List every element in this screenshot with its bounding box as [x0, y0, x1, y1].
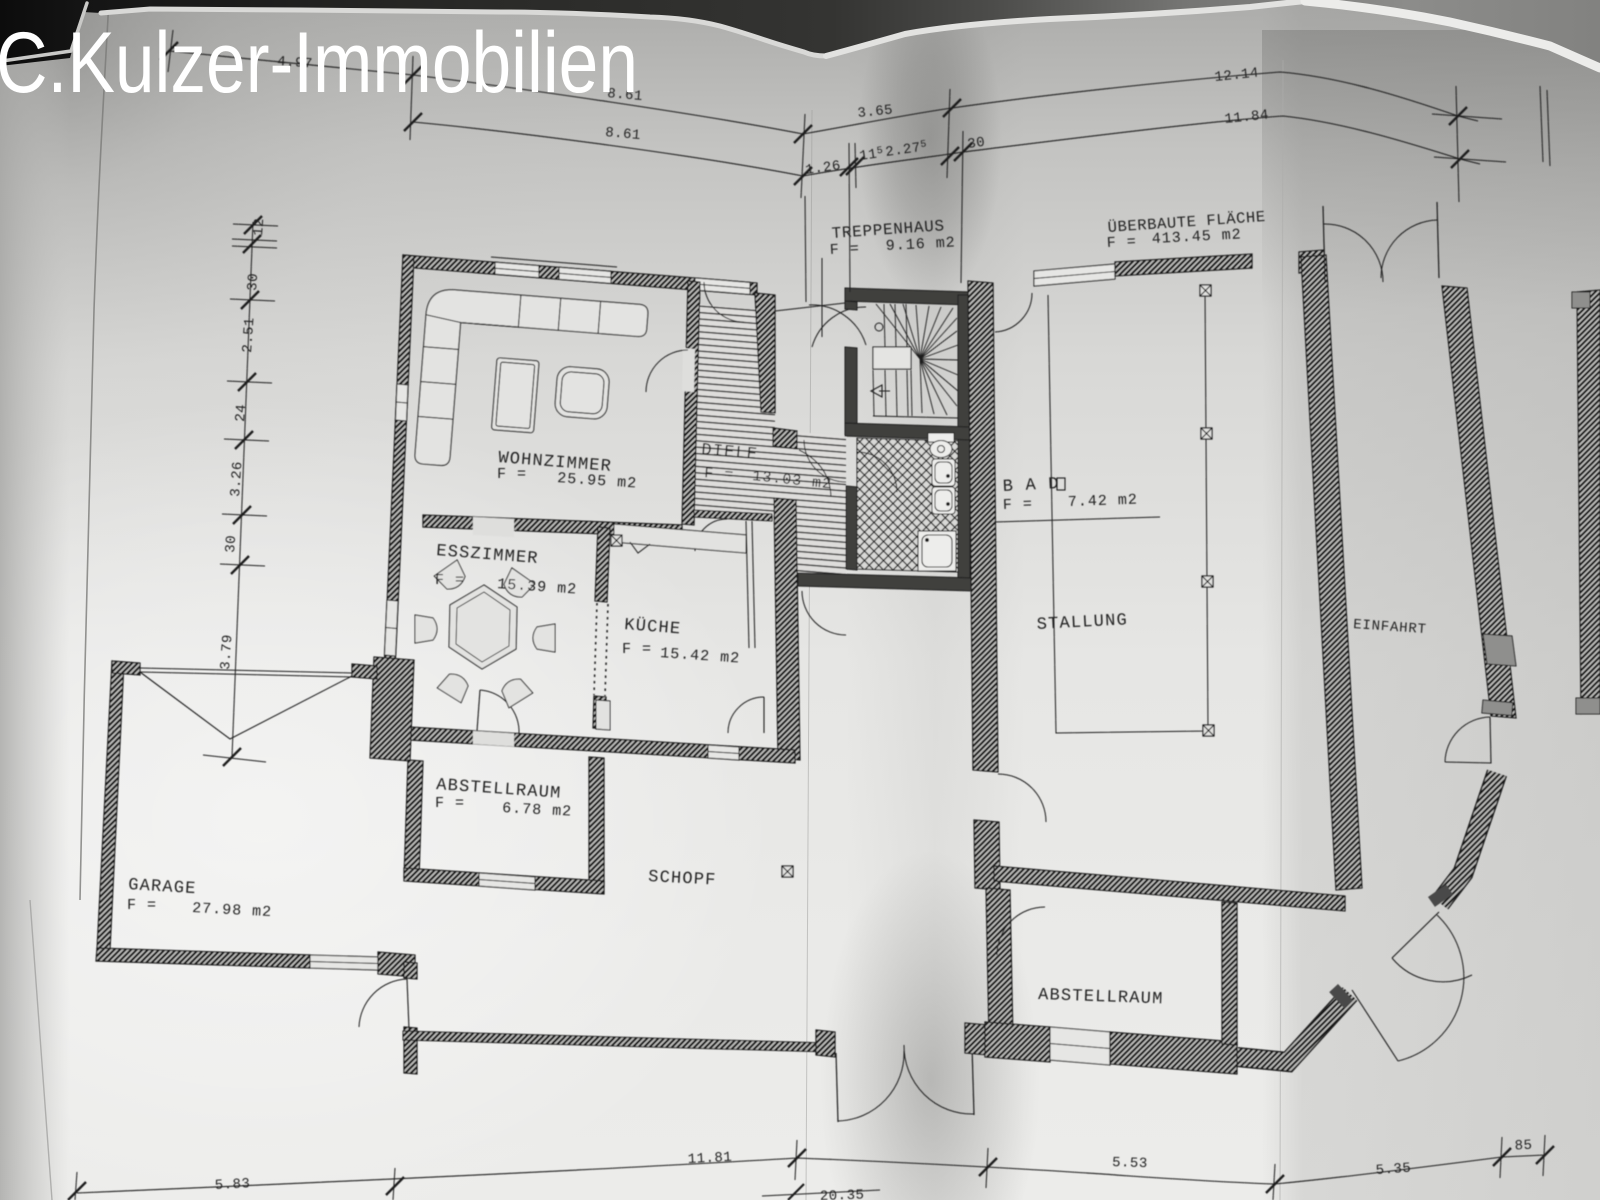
svg-text:24: 24 — [233, 403, 250, 422]
svg-text:12: 12 — [251, 217, 268, 236]
svg-text:F =: F = — [1003, 496, 1034, 514]
svg-text:20.35: 20.35 — [820, 1187, 865, 1200]
svg-text:F =: F = — [622, 641, 652, 658]
svg-text:F =: F = — [1106, 233, 1137, 252]
svg-text:SCHOPF: SCHOPF — [648, 868, 717, 891]
svg-text:3.26: 3.26 — [228, 461, 246, 498]
svg-text:F =: F = — [435, 795, 465, 812]
svg-text:B A D: B A D — [1002, 475, 1060, 497]
svg-text:F =: F = — [704, 465, 735, 484]
svg-text:F =: F = — [127, 897, 157, 914]
svg-text:30: 30 — [966, 135, 986, 153]
svg-text:2.51: 2.51 — [240, 317, 258, 354]
svg-text:F =: F = — [435, 572, 465, 589]
svg-text:5.35: 5.35 — [1375, 1161, 1412, 1179]
svg-text:11.81: 11.81 — [687, 1150, 732, 1168]
svg-text:7.42 m2: 7.42 m2 — [1068, 492, 1139, 511]
svg-text:3.79: 3.79 — [218, 634, 236, 671]
svg-text:C.Kulzer-Immobilien: C.Kulzer-Immobilien — [0, 15, 638, 111]
svg-text:F =: F = — [497, 466, 527, 483]
svg-text:30: 30 — [223, 534, 240, 553]
svg-text:5.53: 5.53 — [1112, 1155, 1148, 1172]
svg-text:5.83: 5.83 — [214, 1176, 250, 1194]
svg-text:F =: F = — [829, 240, 860, 259]
svg-text:30: 30 — [245, 272, 262, 291]
svg-text:.85: .85 — [1505, 1138, 1533, 1155]
svg-text:8.61: 8.61 — [605, 125, 642, 144]
